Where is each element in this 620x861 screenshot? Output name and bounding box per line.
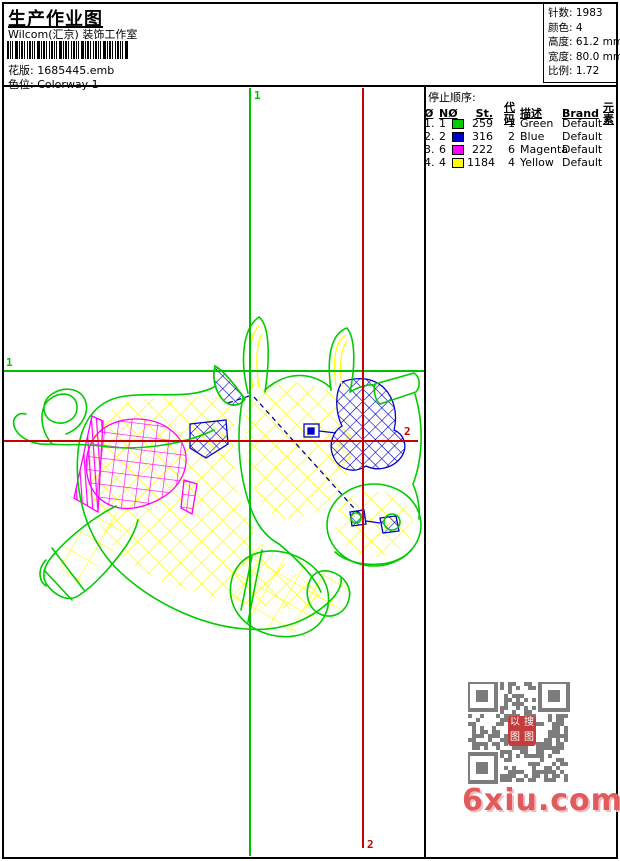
seal-char: 图 bbox=[508, 731, 522, 746]
end-marker-right: 2 bbox=[404, 426, 411, 437]
watermark-site: 6xiu.com bbox=[462, 783, 620, 818]
horn-inner-stitches bbox=[250, 326, 347, 388]
seal-char: 以 bbox=[508, 716, 522, 731]
production-worksheet: 生产作业图 Wilcom(汇京) 装饰工作室 花版: 1685445.emb 色… bbox=[0, 0, 620, 861]
seal-char: 搜 bbox=[522, 716, 536, 731]
start-marker-left: 1 bbox=[6, 357, 13, 368]
qr-center-seal: 以搜图图 bbox=[508, 716, 536, 746]
seal-char: 图 bbox=[522, 731, 536, 746]
end-marker-bottom: 2 bbox=[367, 839, 374, 850]
qr-code: 以搜图图 bbox=[468, 682, 576, 788]
start-marker-top: 1 bbox=[254, 90, 261, 101]
